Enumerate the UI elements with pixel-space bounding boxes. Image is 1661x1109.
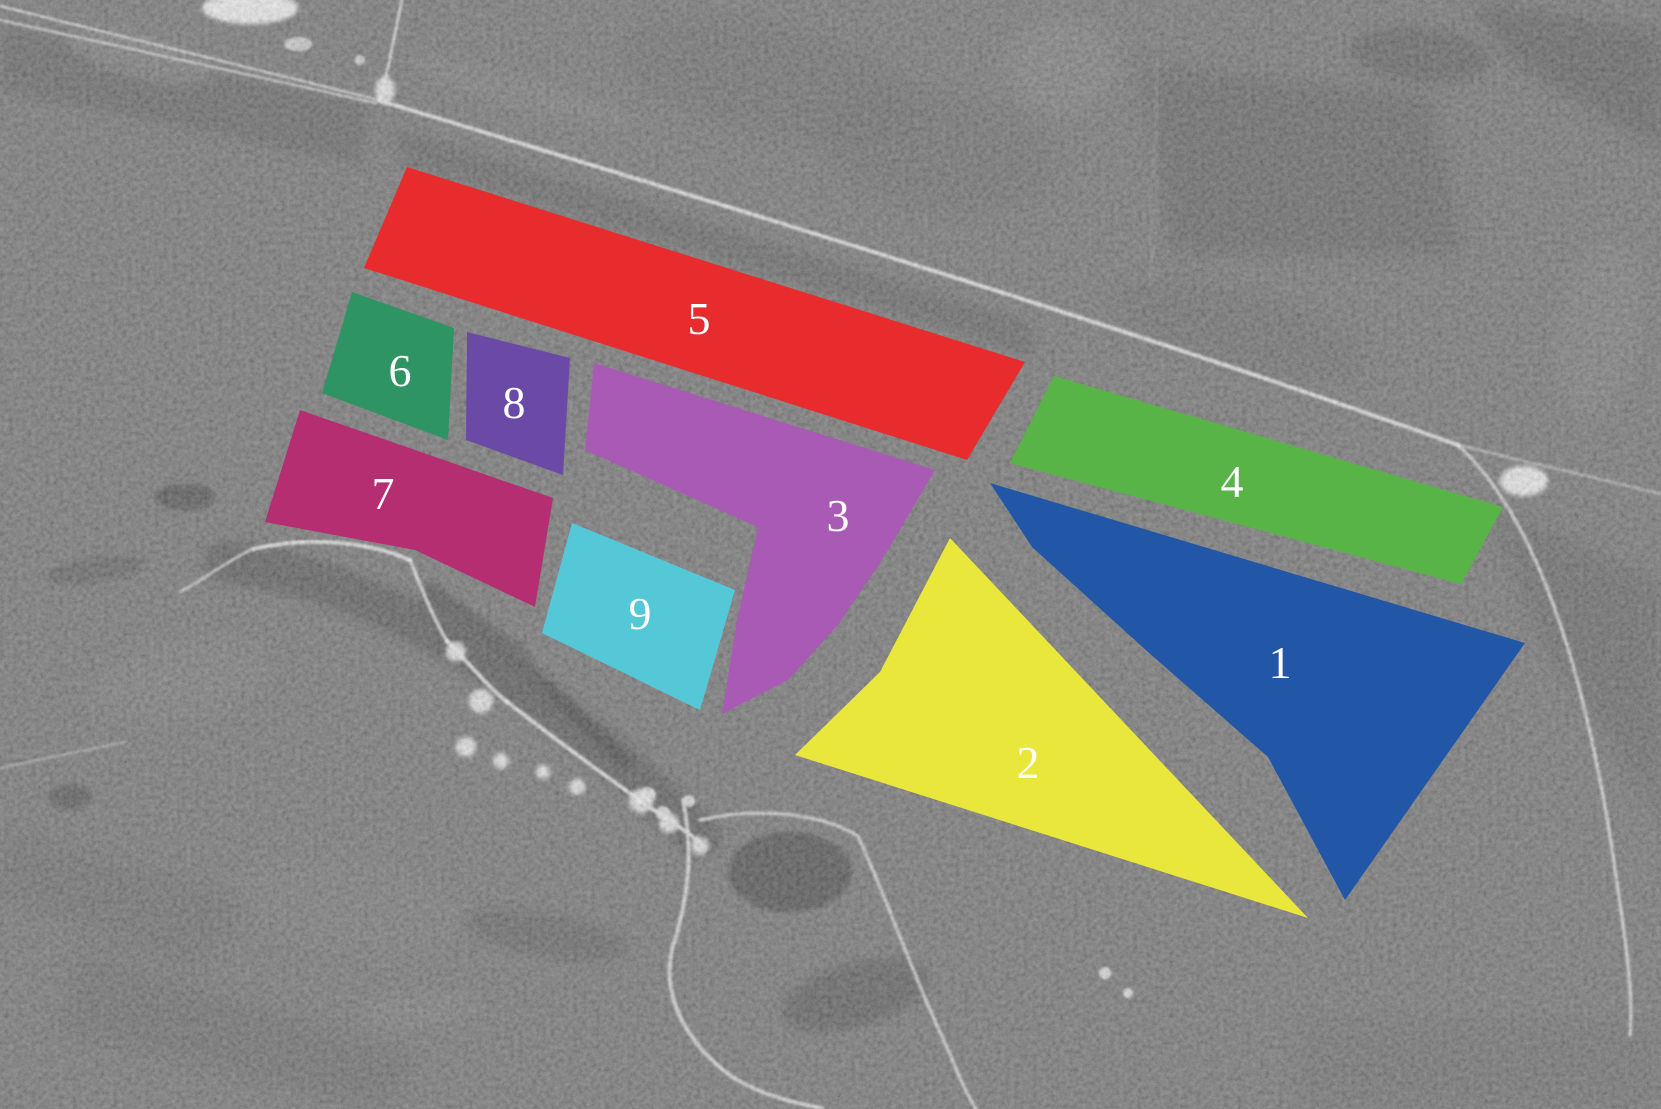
region-label-7: 7 (372, 468, 395, 519)
satellite-image-canvas: 123456789 (0, 0, 1661, 1109)
region-label-1: 1 (1269, 637, 1292, 688)
region-label-8: 8 (503, 377, 526, 428)
region-label-5: 5 (688, 293, 711, 344)
region-label-3: 3 (827, 490, 850, 541)
region-label-2: 2 (1017, 737, 1040, 788)
satellite-figure: 123456789 (0, 0, 1661, 1109)
region-label-6: 6 (389, 345, 412, 396)
region-label-4: 4 (1221, 456, 1244, 507)
region-label-9: 9 (629, 588, 652, 639)
